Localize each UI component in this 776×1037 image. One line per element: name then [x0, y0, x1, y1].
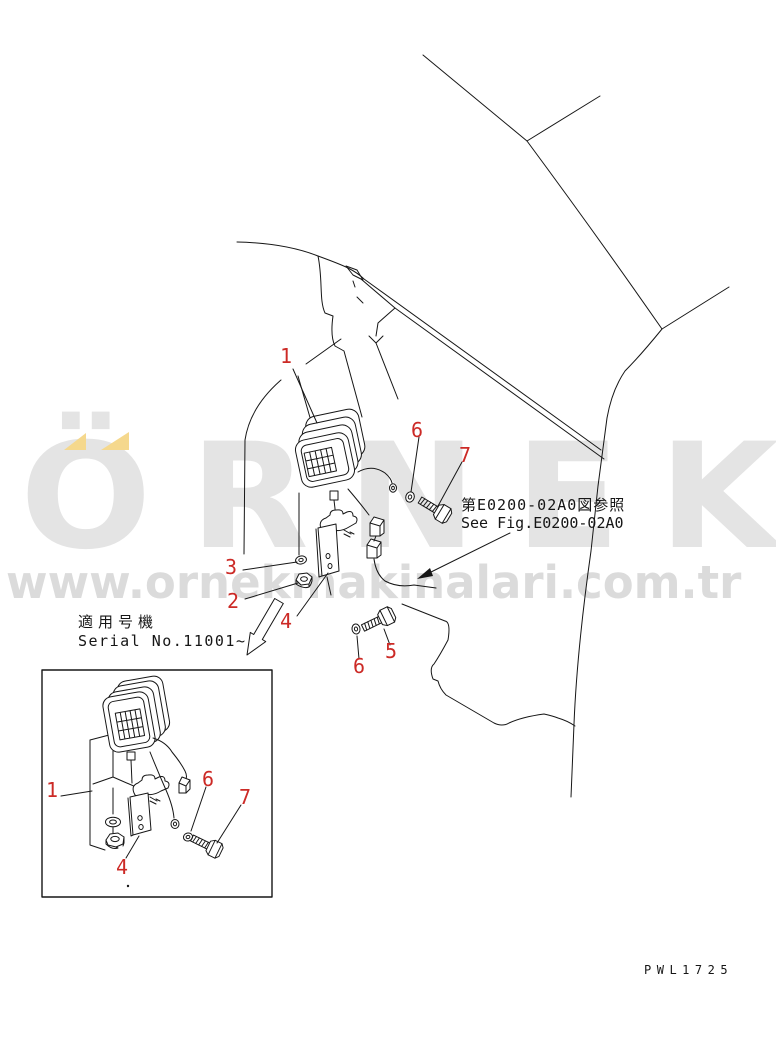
- serial-applicability-note: 適用号機 Serial No.11001~: [78, 613, 247, 651]
- callout-inset-part-6: 6: [201, 768, 215, 790]
- bolt-part7-upper: [416, 493, 454, 525]
- direction-arrow-icon: [247, 599, 283, 656]
- washer-inset: [106, 817, 121, 827]
- see-fig-note-en: See Fig.E0200-02A0: [461, 514, 625, 532]
- mounting-panel-inset: [90, 734, 136, 850]
- inset-detail-box: [42, 670, 272, 897]
- drawing-code: PWL1725: [644, 963, 733, 977]
- cab-corner-detail: [244, 256, 398, 554]
- callout-part-5: 5: [384, 640, 398, 662]
- washer-part6-inset: [183, 832, 194, 842]
- washer-part6-lower: [351, 623, 360, 634]
- fender-outline: [402, 604, 575, 726]
- washer-part6-upper: [404, 491, 415, 503]
- work-lamp-inset: [99, 675, 173, 783]
- ring-terminal-inset-icon: [171, 820, 179, 829]
- bolt-part5: [359, 605, 397, 635]
- serial-note-en: Serial No.11001~: [78, 632, 247, 651]
- callout-part-3: 3: [224, 556, 238, 578]
- parts-diagram-page: ÖRNEK www.ornekmakinalari.com.tr: [0, 0, 776, 1037]
- see-fig-leader: [417, 533, 510, 579]
- callout-part-6-lower: 6: [352, 655, 366, 677]
- callout-inset-part-7: 7: [238, 786, 252, 808]
- callout-inset-part-1: 1: [45, 779, 59, 801]
- callout-part-7-upper: 7: [458, 444, 472, 466]
- callout-part-2: 2: [226, 590, 240, 612]
- washer-part3: [295, 555, 307, 565]
- callout-part-1: 1: [279, 345, 293, 367]
- bolt-part7-inset: [188, 831, 224, 860]
- see-fig-note-jp: 第E0200-02A0図参照: [461, 496, 625, 514]
- callout-inset-part-4: 4: [115, 856, 129, 878]
- callout-part-6-upper: 6: [410, 419, 424, 441]
- callout-part-4: 4: [279, 610, 293, 632]
- ring-terminal-icon: [390, 484, 397, 492]
- see-fig-note: 第E0200-02A0図参照 See Fig.E0200-02A0: [461, 496, 625, 532]
- see-fig-arrowhead-icon: [417, 568, 433, 579]
- exploded-view-drawing: [0, 0, 776, 1037]
- mounting-bracket-main: [316, 510, 357, 595]
- nut-part2: [296, 573, 312, 588]
- serial-note-jp: 適用号機: [78, 613, 247, 632]
- nut-inset: [106, 833, 124, 849]
